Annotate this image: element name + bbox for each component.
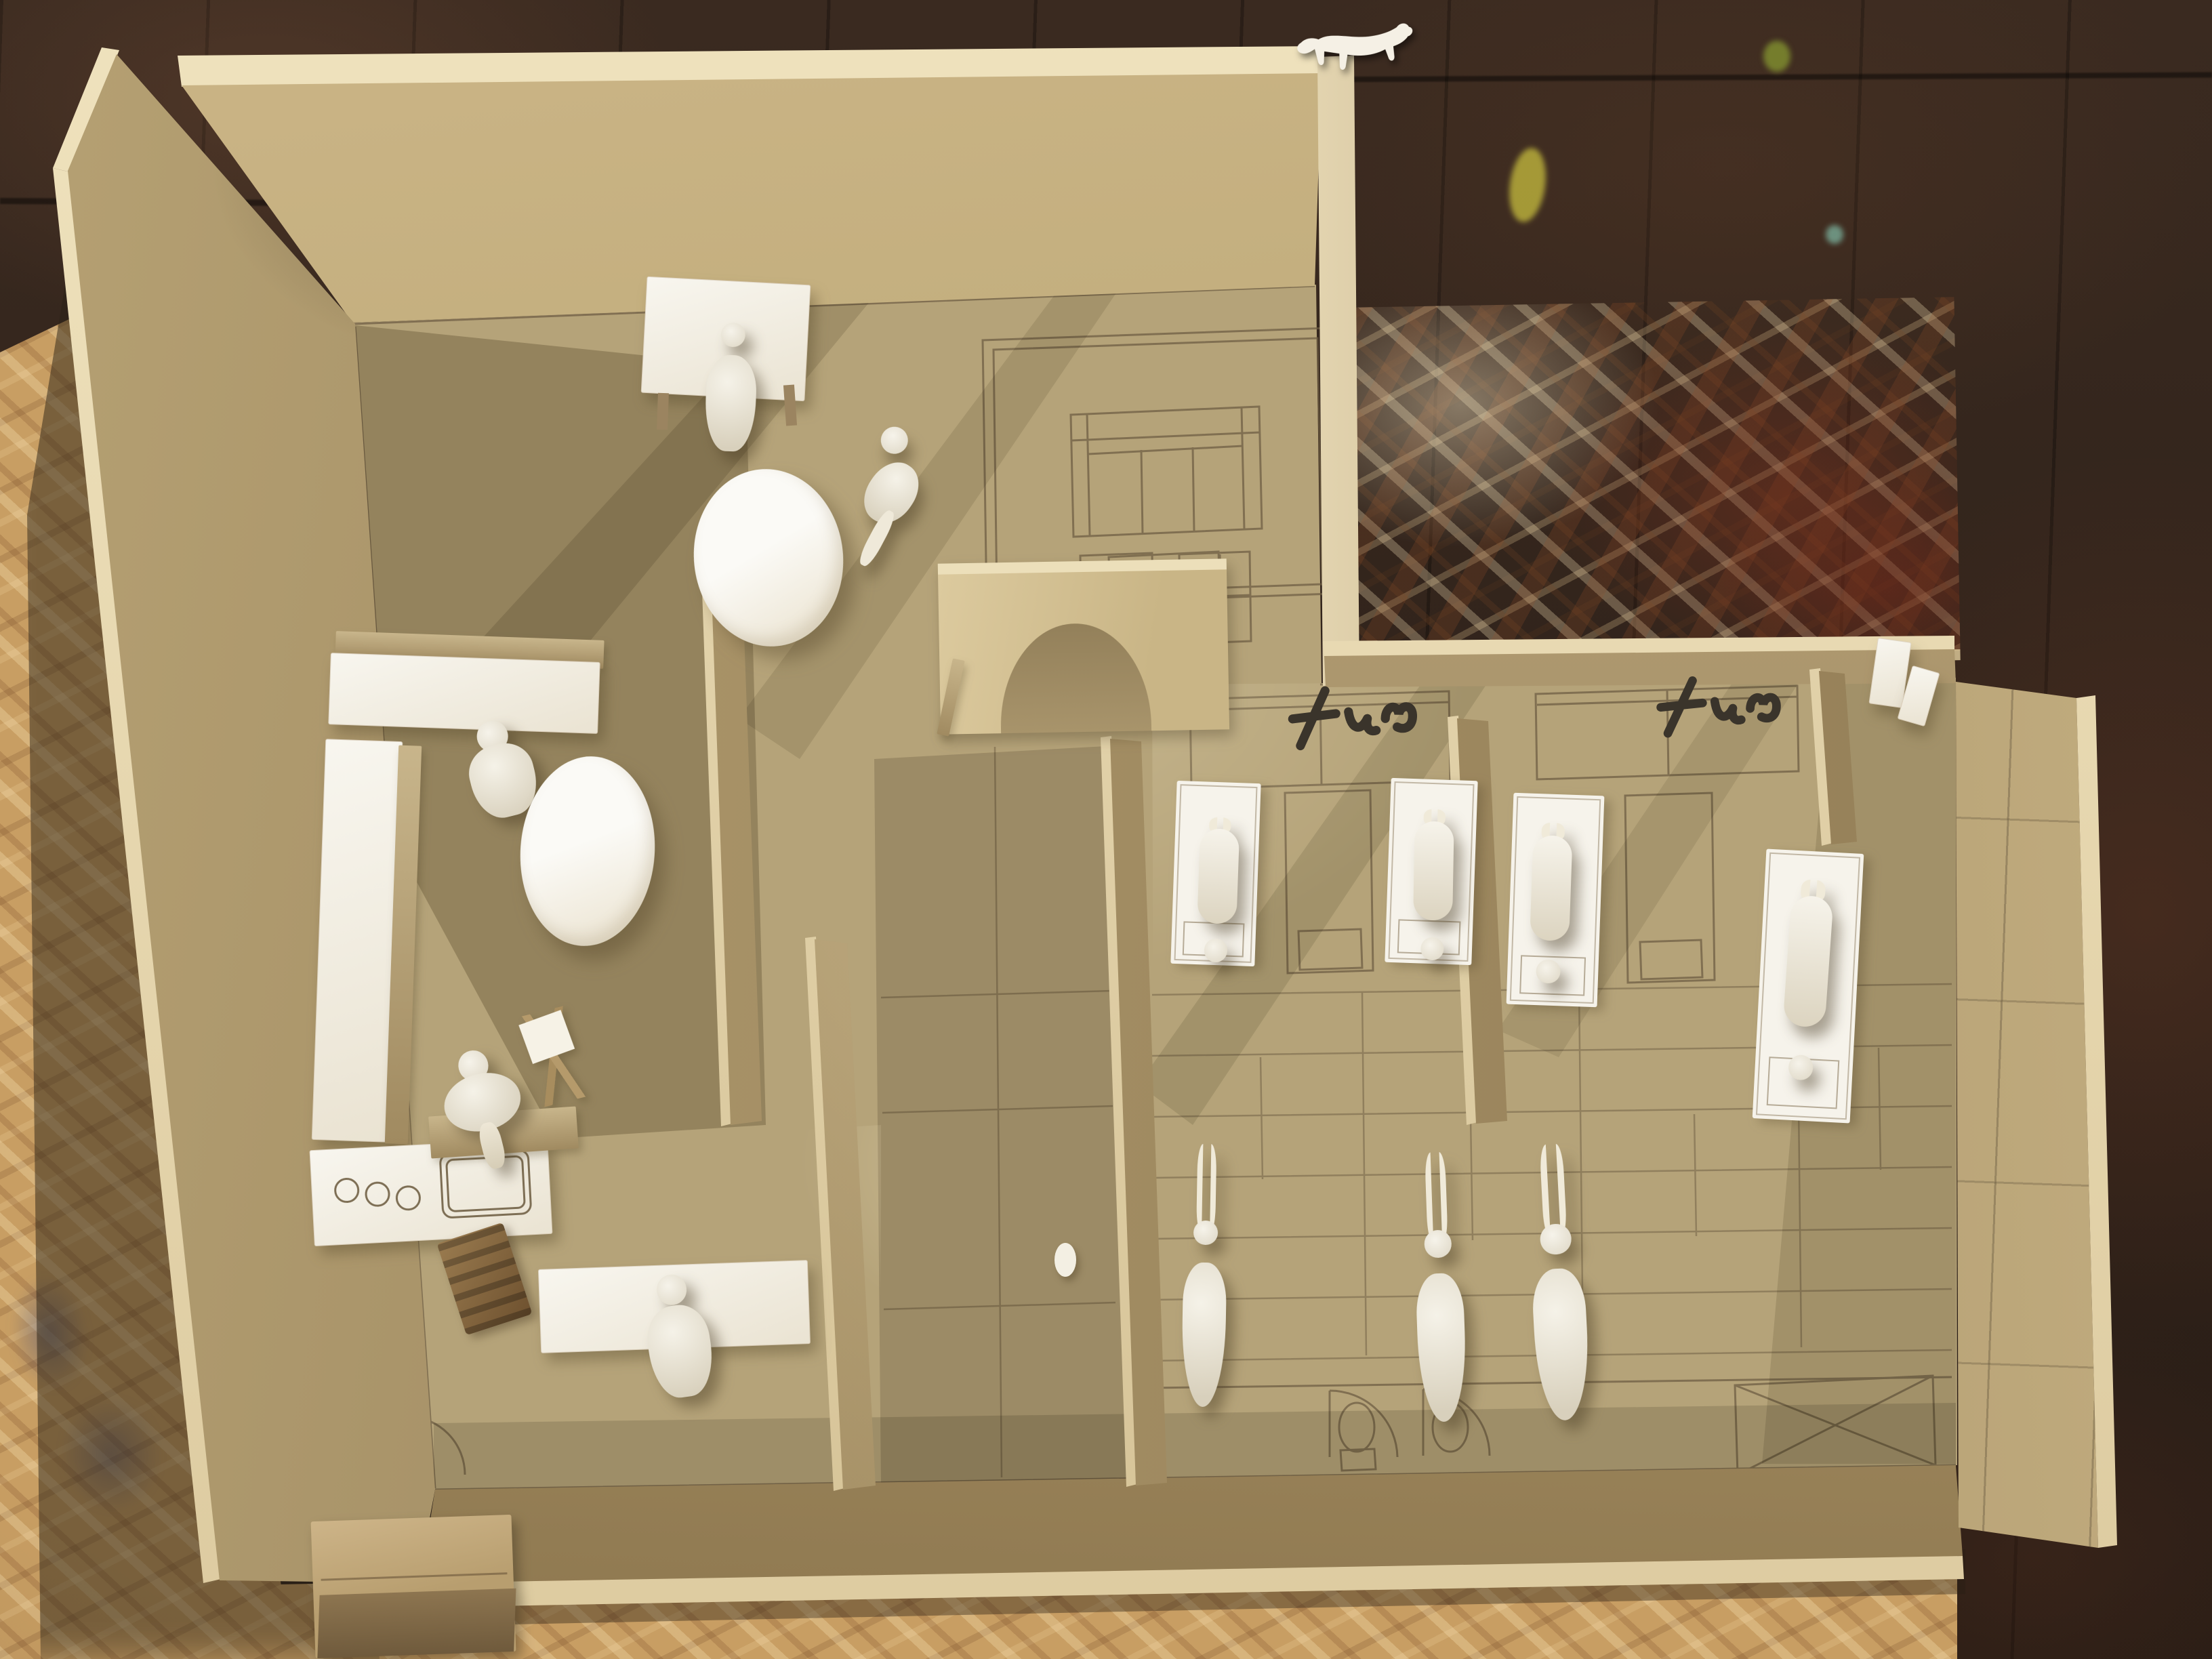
photo-canvas	[0, 0, 2212, 1659]
